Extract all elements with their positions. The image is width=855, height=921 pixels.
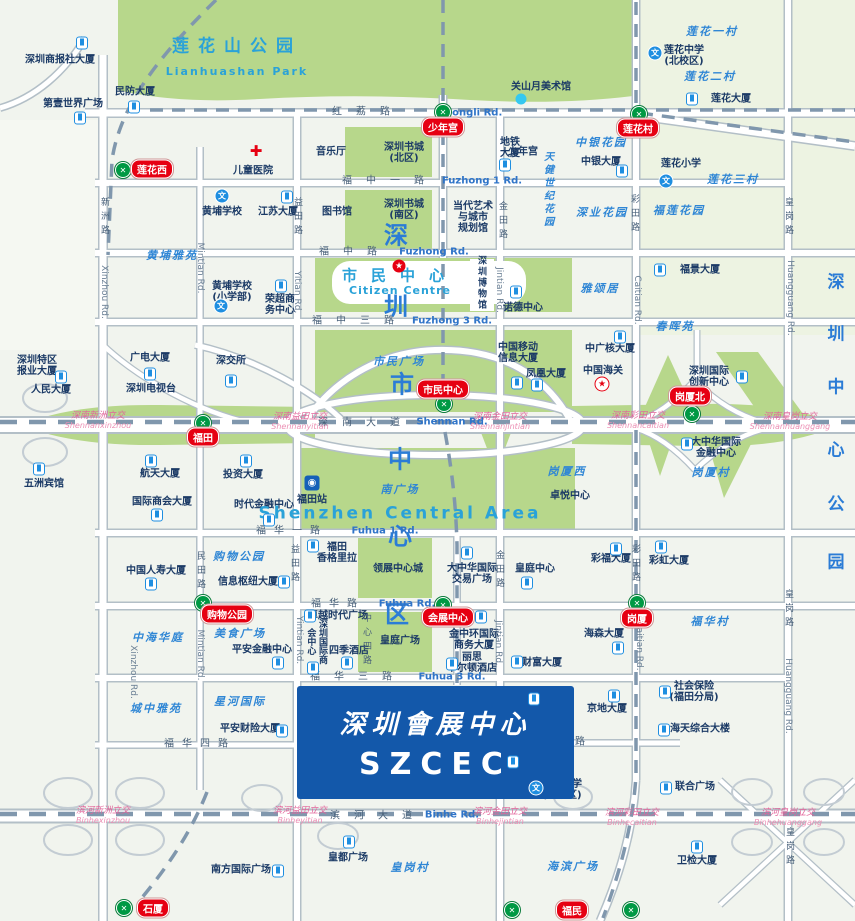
interchange-label-zh: 深南益田立交 (271, 412, 328, 422)
station-badge-莲花村[interactable]: 莲花村 (617, 119, 659, 138)
station-badge-购物公园[interactable]: 购物公园 (201, 605, 253, 624)
road-label-en: Yintian Rd. (294, 616, 304, 664)
interchange-label: 深南新洲立交Shennanxinzhou (65, 411, 131, 431)
station-badge-莲花西[interactable]: 莲花西 (131, 160, 173, 179)
interchange-label-zh: 深南皇岗立交 (750, 412, 831, 422)
central-district-char: 深 (384, 223, 408, 250)
building-icon (446, 658, 458, 671)
interchange-label: 滨河金田立交Binhejintian (473, 807, 527, 827)
building-icon (736, 371, 748, 384)
school-icon: 文 (214, 299, 229, 314)
building-icon (655, 541, 667, 554)
place-label: 人民大厦 (31, 384, 71, 395)
central-park-char: 圳 (828, 325, 845, 344)
interchange-label-en: Binhexinzhou (76, 817, 130, 826)
place-label: 诺德中心 (503, 302, 543, 313)
station-badge-市民中心[interactable]: 市民中心 (417, 380, 469, 399)
road-label-en: Fuzhong Rd. (399, 246, 469, 257)
building-icon (521, 577, 533, 590)
district-label: 福华村 (691, 616, 730, 628)
district-label: 星河国际 (214, 696, 266, 708)
interchange-label-en: Shennanjintian (470, 423, 530, 432)
station-badge-会展中心[interactable]: 会展中心 (422, 608, 474, 627)
district-label: 城中雅苑 (130, 703, 182, 715)
art-museum-dot-icon (516, 94, 527, 105)
place-label: 平安金融中心 (232, 644, 292, 655)
place-label: 航天大厦 (140, 468, 180, 479)
building-icon (686, 93, 698, 106)
interchange-label-en: Binhecaitian (605, 819, 659, 828)
road-label: 金田路 (497, 201, 507, 243)
building-icon (510, 286, 522, 299)
interchange-label: 深南皇岗立交Shennanhuanggang (750, 412, 831, 432)
interchange-label-zh: 深南金田立交 (470, 412, 530, 422)
station-badge-石厦[interactable]: 石厦 (137, 899, 169, 918)
building-icon (681, 438, 693, 451)
place-label: 海天综合大楼 (670, 723, 730, 734)
district-label: 岗厦西 (548, 466, 587, 478)
interchange-label: 深南彩田立交Shennancaitian (607, 411, 669, 431)
metro-station-icon[interactable]: ✕ (116, 900, 132, 916)
building-icon (304, 610, 316, 623)
place-label: 福田 香格里拉 (317, 542, 357, 564)
building-icon (225, 375, 237, 388)
interchange-label-zh: 滨河彩田立交 (605, 808, 659, 818)
road-label: 益田路 (289, 544, 299, 586)
place-label: 南方国际广场 (211, 864, 271, 875)
road-label-en: Xinzhou Rd. (99, 265, 109, 319)
shenzhen-central-map: 深圳會展中心 SZCEC 莲花山公园Lianhuashan Park关山月美术馆… (0, 0, 855, 921)
place-label: 深圳电视台 (126, 383, 176, 394)
place-label: 国际商会大厦 (132, 496, 192, 507)
interchange-label: 滨河皇岗立交Binhehuanggang (754, 808, 822, 828)
school-icon: 文 (659, 174, 674, 189)
building-icon (614, 331, 626, 344)
place-label: 音乐厅 (316, 146, 346, 157)
district-label: 莲花一村 (686, 26, 738, 38)
station-badge-福田[interactable]: 福田 (187, 428, 219, 447)
place-label: 金中环国际 商务大厦 (449, 629, 499, 651)
interchange-label-zh: 滨河新洲立交 (76, 806, 130, 816)
road-label: 福华三路 (310, 671, 406, 682)
road-label: 民田路 (195, 551, 205, 593)
interchange-label-en: Binhehuanggang (754, 819, 822, 828)
building-icon (616, 165, 628, 178)
place-label: 莲花中学 (北校区) (664, 45, 704, 67)
road-label-en: Fuhua 3 Rd. (418, 671, 485, 682)
place-label: 深圳博物馆 (476, 256, 486, 311)
road-label: 新洲路 (99, 197, 109, 239)
place-label: 深交所 (216, 355, 246, 366)
metro-station-icon[interactable]: ✕ (623, 902, 639, 918)
road-label-en: Caitian Rd. (632, 275, 642, 324)
district-label: 莲花二村 (684, 71, 736, 83)
place-label: 五洲宾馆 (24, 478, 64, 489)
place-label: 民防大厦 (115, 86, 155, 97)
road-label: 福华路 (311, 598, 365, 609)
road-label: 深南大道 (318, 417, 414, 428)
place-label: 地铁 大厦 (500, 137, 520, 159)
school-icon: 文 (648, 46, 663, 61)
road-label: 中心四路 (361, 613, 371, 669)
road-label-en: Xinzhou Rd. (128, 645, 138, 699)
interchange-label-zh: 深南彩田立交 (607, 411, 669, 421)
building-icon (33, 463, 45, 476)
civic-centre-star-icon: ★ (393, 260, 406, 273)
road-label-en: Fuzhong 3 Rd. (412, 315, 492, 326)
road-label: 彩田路 (629, 194, 639, 236)
place-label: 荣超商 务中心 (265, 294, 295, 316)
road-label-en: Huangguang Rd. (783, 658, 793, 733)
building-icon (499, 159, 511, 172)
place-label: 福景大厦 (680, 264, 720, 275)
interchange-label: 滨河新洲立交Binhexinzhou (76, 806, 130, 826)
place-label: 深圳特区 报业大厦 (17, 355, 57, 377)
central-district-char: 中 (388, 447, 412, 474)
district-label: 海滨广场 (547, 861, 599, 873)
central-park-char: 园 (828, 553, 845, 572)
building-icon (74, 112, 86, 125)
place-label: 深圳书城 (南区) (384, 199, 424, 221)
district-label: 福莲花园 (653, 205, 705, 217)
interchange-label: 深南金田立交Shennanjintian (470, 412, 530, 432)
building-icon (128, 101, 140, 114)
district-label: 深业花园 (576, 207, 628, 219)
place-label: 平安财险大厦 (220, 723, 280, 734)
road-label: 皇岗路 (783, 197, 793, 239)
building-icon (511, 377, 523, 390)
road-label-en: Jintian Rd. (494, 267, 504, 313)
szcec-title-en: SZCEC (359, 747, 512, 782)
hospital-cross-icon: ✚ (250, 142, 263, 160)
interchange-label: 滨河彩田立交Binhecaitian (605, 808, 659, 828)
road-label-en: Huangguang Rd. (785, 260, 795, 335)
place-label: 福田站 (297, 494, 327, 505)
metro-station-icon[interactable]: ✕ (504, 902, 520, 918)
place-label: 当代艺术 与城市 规划馆 (453, 201, 493, 235)
building-icon (281, 191, 293, 204)
district-label: 南广场 (381, 484, 420, 496)
place-label: 第壹世界广场 (43, 98, 103, 109)
road-label-en: Fuhua 1 Rd. (351, 525, 418, 536)
place-label: 卫检大厦 (677, 855, 717, 866)
place-label: 皇都广场 (328, 852, 368, 863)
place-label: 深圳国际 创新中心 (689, 366, 729, 388)
place-label: 儿童医院 (233, 165, 273, 176)
place-label: 皇庭中心 (515, 563, 555, 574)
district-label: 中银花园 (575, 137, 627, 149)
road-label: 益田路 (292, 197, 302, 239)
building-icon (276, 725, 288, 738)
station-badge-岗厦[interactable]: 岗厦 (621, 609, 653, 628)
place-label: 中国海关 (583, 365, 623, 376)
place-label: 彩虹大厦 (649, 555, 689, 566)
road-label-en: Binhe Rd. (425, 809, 479, 820)
building-icon (307, 662, 319, 675)
district-label: 皇岗村 (391, 862, 430, 874)
station-badge-岗厦北[interactable]: 岗厦北 (669, 387, 711, 406)
building-icon (145, 455, 157, 468)
szcec-title-zh: 深圳會展中心 (339, 704, 531, 741)
place-label: 社会保险 (福田分局) (669, 681, 718, 703)
place-label: 中国移动 信息大厦 (498, 342, 538, 364)
building-icon (272, 657, 284, 670)
district-label: 莲花三村 (707, 174, 759, 186)
road-label: 金田路 (494, 550, 504, 592)
place-label: 领展中心城 (373, 563, 423, 574)
place-label: 广电大厦 (130, 352, 170, 363)
road-label: 红荔路 (332, 106, 404, 117)
interchange-label-en: Shennancaitian (607, 422, 669, 431)
district-label: 购物公园 (213, 551, 265, 563)
building-icon (278, 576, 290, 589)
central-park-char: 中 (828, 378, 845, 397)
building-icon (528, 693, 540, 706)
building-icon (343, 836, 355, 849)
place-label: 中国人寿大厦 (126, 565, 186, 576)
interchange-label: 深南益田立交Shennanyitian (271, 412, 328, 432)
building-icon (341, 657, 353, 670)
interchange-label: 滨河益田立交Binheyitian (273, 806, 327, 826)
place-label: 大中华国际 交易广场 (447, 563, 497, 585)
building-icon (307, 540, 319, 553)
place-label: 中广核大厦 (585, 343, 635, 354)
central-park-char: 公 (828, 495, 845, 514)
building-icon (658, 724, 670, 737)
place-label: 卓悦中心 (550, 490, 590, 501)
lianhuashan-park-title: 莲花山公园 (172, 37, 302, 56)
place-label: 财富大厦 (522, 657, 562, 668)
interchange-label-zh: 深南新洲立交 (65, 411, 131, 421)
building-icon (691, 841, 703, 854)
building-icon (475, 611, 487, 624)
road-label: 滨河大道 (330, 810, 426, 821)
road-label: 皇岗路 (784, 827, 794, 869)
metro-station-icon[interactable]: ✕ (115, 162, 131, 178)
building-icon (272, 865, 284, 878)
lianhuashan-park-subtitle: Lianhuashan Park (166, 66, 309, 78)
building-icon (531, 379, 543, 392)
interchange-label-en: Shennanhuanggang (750, 423, 831, 432)
road-label-en: Mintian Rd. (195, 630, 205, 681)
district-label: 中海华庭 (132, 632, 184, 644)
interchange-label-zh: 滨河益田立交 (273, 806, 327, 816)
building-icon (608, 690, 620, 703)
building-icon (240, 455, 252, 468)
building-icon (660, 782, 672, 795)
district-label: 春晖苑 (656, 321, 695, 333)
place-label: 黄埔学校 (202, 206, 242, 217)
road-label-en: Jintian Rd. (493, 620, 503, 666)
district-label: 岗厦村 (692, 467, 731, 479)
road-label-en: Yitian Rd. (292, 271, 302, 314)
road-label-en: Mintian Rd. (195, 243, 205, 294)
district-label: 天健世纪花园 (541, 151, 552, 229)
building-icon (151, 509, 163, 522)
road-label: 彩田路 (630, 544, 640, 586)
road-label: 福中一路 (342, 175, 438, 186)
place-label: 莲花小学 (661, 158, 701, 169)
interchange-label-en: Binhejintian (473, 818, 527, 827)
guanshanyue-art-museum-label: 关山月美术馆 (511, 81, 571, 92)
school-icon: 文 (215, 189, 230, 204)
district-label: 市民广场 (373, 356, 425, 368)
building-icon (507, 756, 519, 769)
place-label: 信息枢纽大厦 (218, 576, 278, 587)
building-icon (145, 578, 157, 591)
building-icon (76, 37, 88, 50)
place-label: 海森大厦 (584, 628, 624, 639)
road-label: 皇岗路 (783, 589, 793, 631)
building-icon (610, 543, 622, 556)
place-label: 投资大厦 (223, 469, 263, 480)
building-icon (511, 656, 523, 669)
building-icon (144, 368, 156, 381)
building-icon (263, 514, 275, 527)
railway-station-icon: ◉ (305, 476, 320, 491)
road-label: 福中路 (319, 246, 391, 257)
place-label: 联合广场 (675, 781, 715, 792)
building-icon (55, 371, 67, 384)
place-label: 中银大厦 (581, 156, 621, 167)
metro-station-icon[interactable]: ✕ (684, 406, 700, 422)
place-label: 皇庭广场 (380, 635, 420, 646)
building-icon (659, 686, 671, 699)
interchange-label-en: Shennanxinzhou (65, 422, 131, 431)
interchange-label-zh: 滨河金田立交 (473, 807, 527, 817)
interchange-label-zh: 滨河皇岗立交 (754, 808, 822, 818)
building-icon (461, 547, 473, 560)
station-badge-少年宫[interactable]: 少年宫 (422, 118, 464, 137)
place-label: 京地大厦 (587, 703, 627, 714)
station-badge-福民[interactable]: 福民 (556, 901, 588, 920)
road-label: 福中三路 (312, 315, 408, 326)
interchange-label-en: Shennanyitian (271, 423, 328, 432)
place-label: 深圳书城 (北区) (384, 142, 424, 164)
road-label: 福华四路 (164, 738, 236, 749)
place-label: 深圳国际商会中心 (303, 615, 327, 667)
central-park-char: 心 (828, 441, 845, 460)
place-label: 莲花大厦 (711, 93, 751, 104)
road-label: 福华一路 (256, 525, 328, 536)
district-label: 美食广场 (214, 628, 266, 640)
school-icon: 文 (529, 781, 544, 796)
district-label: 雅颂居 (581, 283, 620, 295)
interchange-label-en: Binheyitian (273, 817, 327, 826)
place-label: 大中华国际 金融中心 (691, 437, 741, 459)
district-label: 黄埔雅苑 (146, 250, 198, 262)
central-district-char: 市 (390, 372, 414, 399)
place-label: 深圳商报社大厦 (25, 54, 95, 65)
building-icon (275, 280, 287, 293)
road-label-en: Caitian Rd. (634, 621, 644, 670)
building-icon (612, 642, 624, 655)
road-label-en: Fuzhong 1 Rd. (442, 175, 522, 186)
building-icon (654, 264, 666, 277)
place-label: 图书馆 (322, 206, 352, 217)
customs-star-icon: ★ (595, 377, 610, 392)
central-park-char: 深 (828, 273, 845, 292)
